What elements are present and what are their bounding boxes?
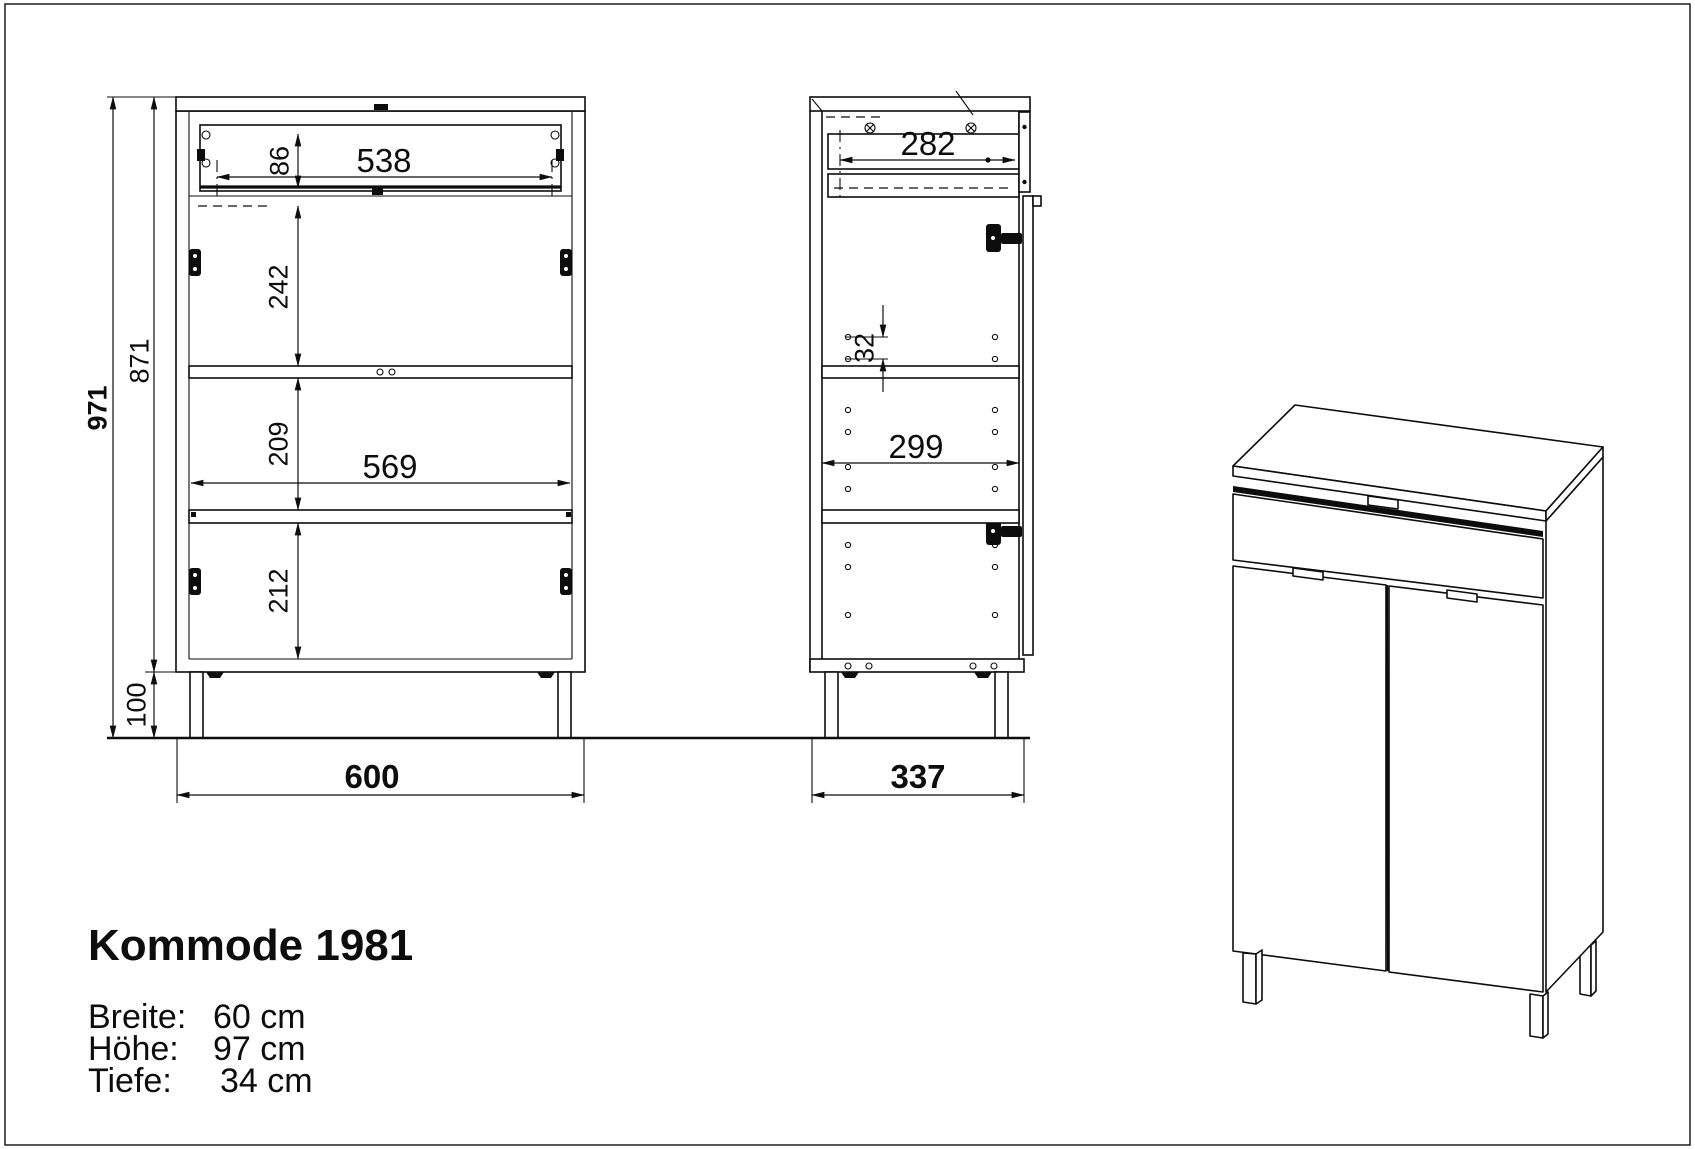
hinge-icon [986, 224, 1022, 252]
iso-view [1233, 405, 1603, 1038]
side-shelf-2 [822, 510, 1019, 523]
drawer-center-clip [372, 188, 383, 195]
front-leg-right [558, 672, 571, 738]
hinge-icon [560, 249, 572, 276]
dim-section-bottom: 212 [263, 568, 293, 613]
dim-interior-width: 569 [362, 448, 417, 485]
iso-door-left [1233, 566, 1386, 971]
iso-leg-front-left [1243, 953, 1256, 1004]
front-carcass [176, 111, 585, 672]
dim-interior-depth: 299 [888, 428, 943, 465]
side-leg-front [995, 672, 1008, 738]
front-shelf-1 [189, 366, 572, 378]
leg-mount [206, 672, 224, 678]
hinge-icon [560, 568, 572, 595]
dim-drawer-front-height: 86 [264, 146, 294, 176]
iso-leg-front-right [1530, 994, 1543, 1038]
dim-depth: 337 [890, 758, 945, 795]
side-top-board [810, 97, 1030, 111]
dim-drawer-width: 538 [356, 142, 411, 179]
drawing-title: Kommode 1981 [88, 921, 413, 970]
dim-total-height: 971 [82, 385, 112, 430]
front-shelf-2 [189, 510, 572, 523]
side-door-handle [1033, 196, 1041, 206]
dim-section-top: 242 [263, 264, 293, 309]
front-top-handle-notch [374, 104, 388, 110]
iso-side-panel [1546, 457, 1603, 992]
dim-drawer-depth: 282 [900, 125, 955, 162]
spec-value-tiefe: 34 cm [220, 1062, 313, 1100]
dim-leg-height: 100 [121, 682, 151, 727]
hinge-icon [189, 249, 201, 276]
side-door [1023, 196, 1033, 655]
dim-pin-spacing: 32 [849, 333, 879, 363]
leg-mount [537, 672, 555, 678]
side-shelf-1 [822, 366, 1019, 378]
dim-body-height: 871 [124, 338, 154, 383]
screw-icon [865, 123, 875, 133]
leg-mount [974, 672, 992, 678]
front-view [176, 97, 585, 738]
drawing-canvas: 971 871 100 86 538 242 209 569 212 600 [0, 0, 1695, 1149]
side-bottom-board [810, 659, 1024, 672]
hinge-icon [189, 568, 201, 595]
leg-mount [841, 672, 859, 678]
dim-section-middle: 209 [263, 421, 293, 466]
dim-width: 600 [344, 758, 399, 795]
drawer-rail-left [197, 149, 205, 161]
side-leg-back [825, 672, 838, 738]
screw-icon [966, 123, 976, 133]
side-view [810, 91, 1041, 738]
drawer-rail-right [556, 149, 564, 161]
spec-label-tiefe: Tiefe: [88, 1062, 172, 1100]
front-leg-left [190, 672, 203, 738]
title-block: Kommode 1981 Breite: 60 cm Höhe: 97 cm T… [88, 921, 413, 1100]
iso-door-right [1389, 586, 1543, 992]
technical-drawing-page: 971 871 100 86 538 242 209 569 212 600 [0, 0, 1695, 1149]
